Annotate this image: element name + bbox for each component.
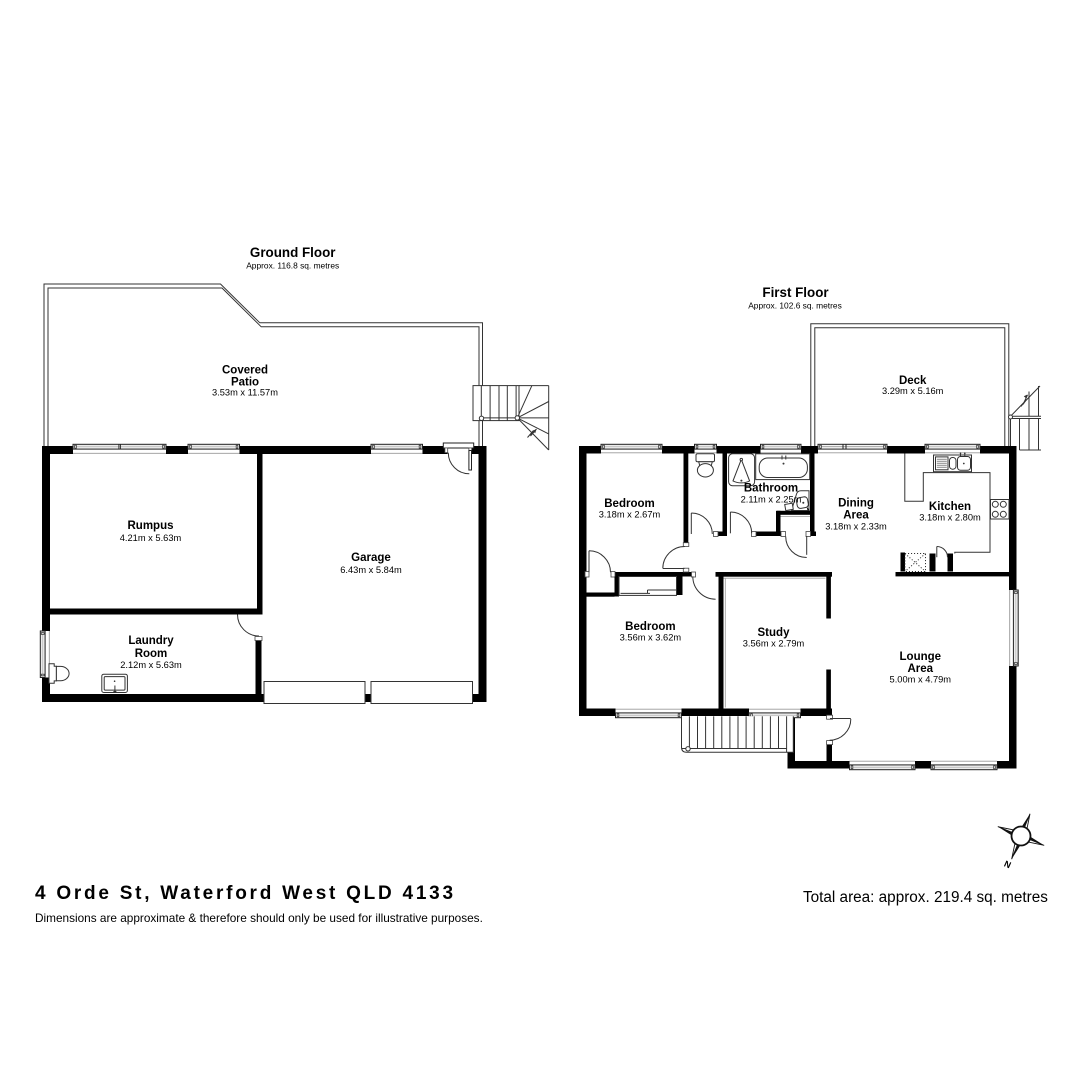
- svg-text:Area: Area: [908, 663, 934, 675]
- svg-text:Bedroom: Bedroom: [625, 621, 675, 633]
- svg-text:Laundry: Laundry: [128, 635, 174, 647]
- svg-text:3.18m x 2.33m: 3.18m x 2.33m: [825, 522, 887, 532]
- svg-text:Approx. 116.8 sq. metres: Approx. 116.8 sq. metres: [246, 261, 339, 271]
- svg-text:3.53m x 11.57m: 3.53m x 11.57m: [212, 387, 278, 397]
- svg-text:Total area: approx. 219.4 sq.: Total area: approx. 219.4 sq. metres: [803, 889, 1048, 906]
- svg-text:Area: Area: [843, 510, 869, 522]
- svg-text:Approx. 102.6 sq. metres: Approx. 102.6 sq. metres: [748, 301, 842, 311]
- svg-text:3.56m x 2.79m: 3.56m x 2.79m: [743, 639, 805, 649]
- svg-text:Lounge: Lounge: [900, 651, 942, 663]
- svg-text:6.43m x 5.84m: 6.43m x 5.84m: [340, 565, 402, 575]
- svg-text:Kitchen: Kitchen: [929, 501, 971, 513]
- svg-text:Ground Floor: Ground Floor: [250, 245, 336, 260]
- svg-text:Rumpus: Rumpus: [128, 520, 174, 532]
- svg-text:3.18m x 2.67m: 3.18m x 2.67m: [599, 510, 661, 520]
- svg-text:3.18m x 2.80m: 3.18m x 2.80m: [919, 513, 981, 523]
- svg-text:Dining: Dining: [838, 498, 874, 510]
- svg-text:Dimensions are approximate & t: Dimensions are approximate & therefore s…: [35, 911, 483, 925]
- svg-text:3.29m x 5.16m: 3.29m x 5.16m: [882, 386, 944, 396]
- svg-text:Room: Room: [135, 648, 168, 660]
- svg-text:2.11m x 2.25m: 2.11m x 2.25m: [741, 495, 802, 505]
- svg-text:Covered: Covered: [222, 364, 268, 376]
- svg-text:Bathroom: Bathroom: [744, 483, 798, 495]
- svg-text:4.21m x 5.63m: 4.21m x 5.63m: [120, 533, 182, 543]
- svg-text:Garage: Garage: [351, 552, 391, 564]
- svg-text:5.00m x 4.79m: 5.00m x 4.79m: [890, 675, 952, 685]
- svg-text:Study: Study: [758, 627, 791, 639]
- svg-text:First Floor: First Floor: [762, 285, 829, 300]
- svg-text:2.12m x 5.63m: 2.12m x 5.63m: [120, 660, 182, 670]
- svg-text:3.56m x 3.62m: 3.56m x 3.62m: [620, 633, 682, 643]
- svg-text:4 Orde St, Waterford West QLD: 4 Orde St, Waterford West QLD 4133: [35, 883, 456, 904]
- svg-text:Bedroom: Bedroom: [604, 498, 654, 510]
